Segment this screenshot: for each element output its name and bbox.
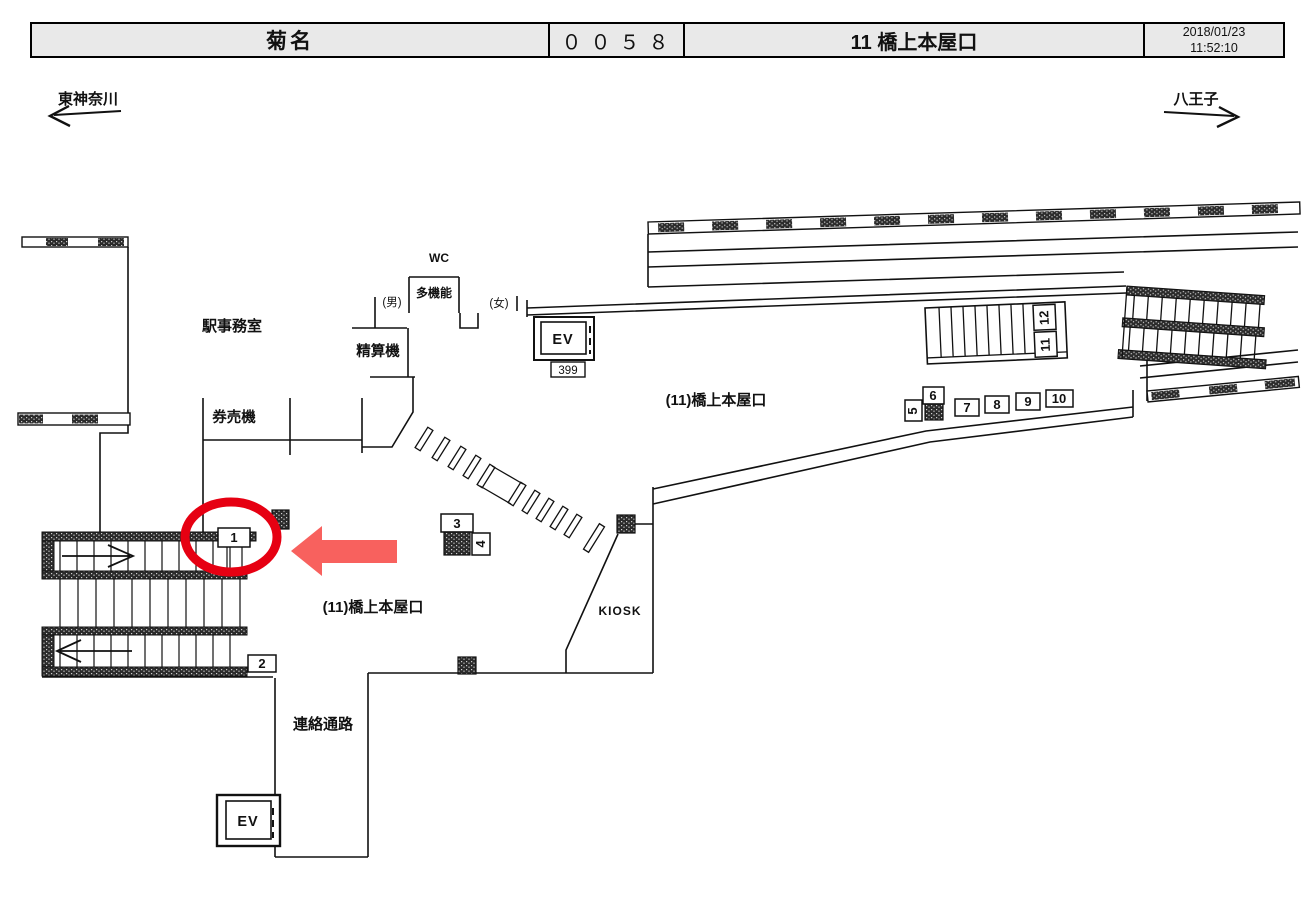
stairs-middle: 12 11 <box>925 302 1067 364</box>
direction-right-shaft <box>1164 112 1234 116</box>
platform-edge-top <box>648 202 1300 234</box>
station-office-label: 駅事務室 <box>201 317 262 335</box>
wall-bar-upper-left <box>18 237 130 425</box>
passage-label: 連絡通路 <box>293 715 354 733</box>
direction-left-shaft <box>54 111 121 115</box>
location-number-6: 6 <box>929 388 936 403</box>
kiosk-label: KIOSK <box>598 604 641 618</box>
multifunction-toilet-label: 多機能 <box>416 285 452 300</box>
location-number-1: 1 <box>230 530 237 545</box>
stairs-up-arrow <box>62 545 133 567</box>
pillar-concourse-wall <box>458 657 476 674</box>
direction-left: 東神奈川 <box>50 90 121 126</box>
elevator-upper: EV 399 <box>534 317 594 377</box>
location-number-8: 8 <box>993 397 1000 412</box>
location-number-10: 10 <box>1052 391 1066 406</box>
fare-adjustment-label: 精算機 <box>356 342 400 360</box>
direction-right-arrowhead <box>1217 107 1238 127</box>
direction-right-label: 八王子 <box>1172 91 1218 108</box>
platform-edge-lower-right <box>1147 376 1299 402</box>
stairs-left <box>42 532 256 676</box>
direction-left-arrowhead <box>50 106 70 126</box>
floor-plan: 東神奈川 八王子 <box>0 0 1312 909</box>
plan-labels: 駅事務室 券売機 精算機 WC 多機能 (男) (女) (11)橋上本屋口 (1… <box>201 251 766 733</box>
box1-legs <box>227 547 242 569</box>
location-number-3: 3 <box>453 516 460 531</box>
location-number-2: 2 <box>258 656 265 671</box>
pillar-gates-end <box>617 515 635 533</box>
location-number-5: 5 <box>905 407 920 414</box>
mens-toilet-label: (男) <box>382 297 401 309</box>
direction-left-label: 東神奈川 <box>58 90 118 108</box>
elevator-lower-label: EV <box>237 814 258 830</box>
location-boxes <box>218 387 1073 672</box>
elevator-lower: EV <box>217 795 280 846</box>
ticket-machines-label: 券売機 <box>212 408 256 426</box>
panel-under-box6 <box>925 404 943 420</box>
location-number-11: 11 <box>1037 338 1053 352</box>
direction-right: 八王子 <box>1164 91 1238 127</box>
womens-toilet-label: (女) <box>489 296 508 310</box>
location-number-9: 9 <box>1024 394 1031 409</box>
station-map-page: 菊名 ００５８ 11 橋上本屋口 2018/01/23 11:52:10 東神奈… <box>0 0 1312 909</box>
panel-under-box3 <box>444 532 470 555</box>
location-number-4: 4 <box>473 540 488 548</box>
wc-label: WC <box>429 251 449 265</box>
stair-treads-middle <box>60 579 240 627</box>
location-box-numbers: 1 2 3 4 5 6 7 8 9 10 <box>230 388 1066 671</box>
highlight-arrow <box>291 526 397 576</box>
location-number-7: 7 <box>963 400 970 415</box>
location-number-12: 12 <box>1036 310 1052 325</box>
concourse-label-left: (11)橋上本屋口 <box>323 598 424 616</box>
concourse-label-right: (11)橋上本屋口 <box>666 391 767 409</box>
elevator-upper-label: EV <box>552 332 573 348</box>
stairs-right-platform <box>1118 286 1271 369</box>
elevator-number: 399 <box>558 365 577 377</box>
